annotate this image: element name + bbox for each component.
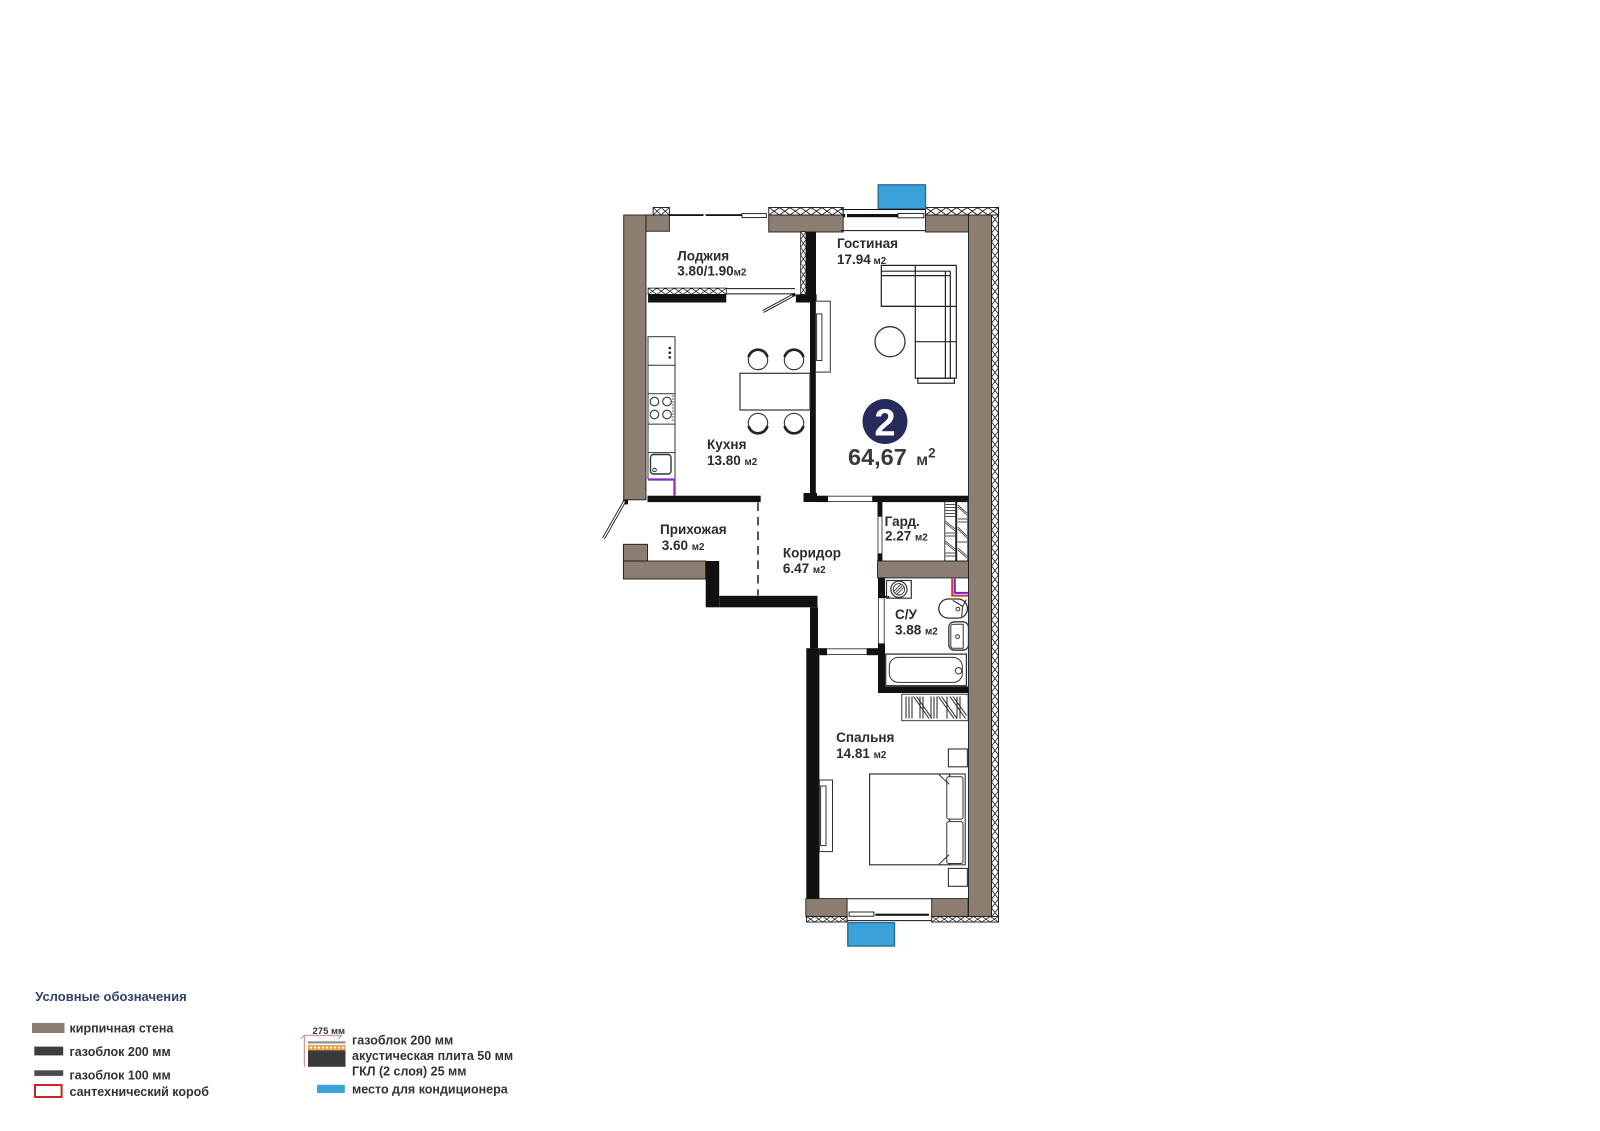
svg-text:место для кондиционера: место для кондиционера [352,1083,509,1097]
svg-text:2: 2 [874,402,895,444]
svg-text:газоблок 100 мм: газоблок 100 мм [70,1069,171,1083]
svg-text:Кухня: Кухня [707,437,746,452]
svg-text:кирпичная стена: кирпичная стена [70,1022,175,1036]
svg-text:Спальня: Спальня [836,730,894,745]
svg-text:Условные обозначения: Условные обозначения [35,989,186,1004]
svg-text:акустическая плита 50 мм: акустическая плита 50 мм [352,1049,513,1063]
svg-text:сантехнический короб: сантехнический короб [70,1085,210,1099]
svg-text:Гостиная: Гостиная [837,236,898,251]
svg-text:Коридор: Коридор [783,546,841,561]
svg-text:Гард.: Гард. [885,514,920,529]
svg-text:Лоджия: Лоджия [677,249,729,264]
svg-text:С/У: С/У [895,607,918,622]
svg-text:газоблок 200 мм: газоблок 200 мм [352,1034,453,1048]
svg-text:газоблок 200 мм: газоблок 200 мм [70,1045,171,1059]
svg-text:Прихожая: Прихожая [660,522,727,537]
svg-text:ГКЛ (2 слоя) 25 мм: ГКЛ (2 слоя) 25 мм [352,1065,467,1079]
